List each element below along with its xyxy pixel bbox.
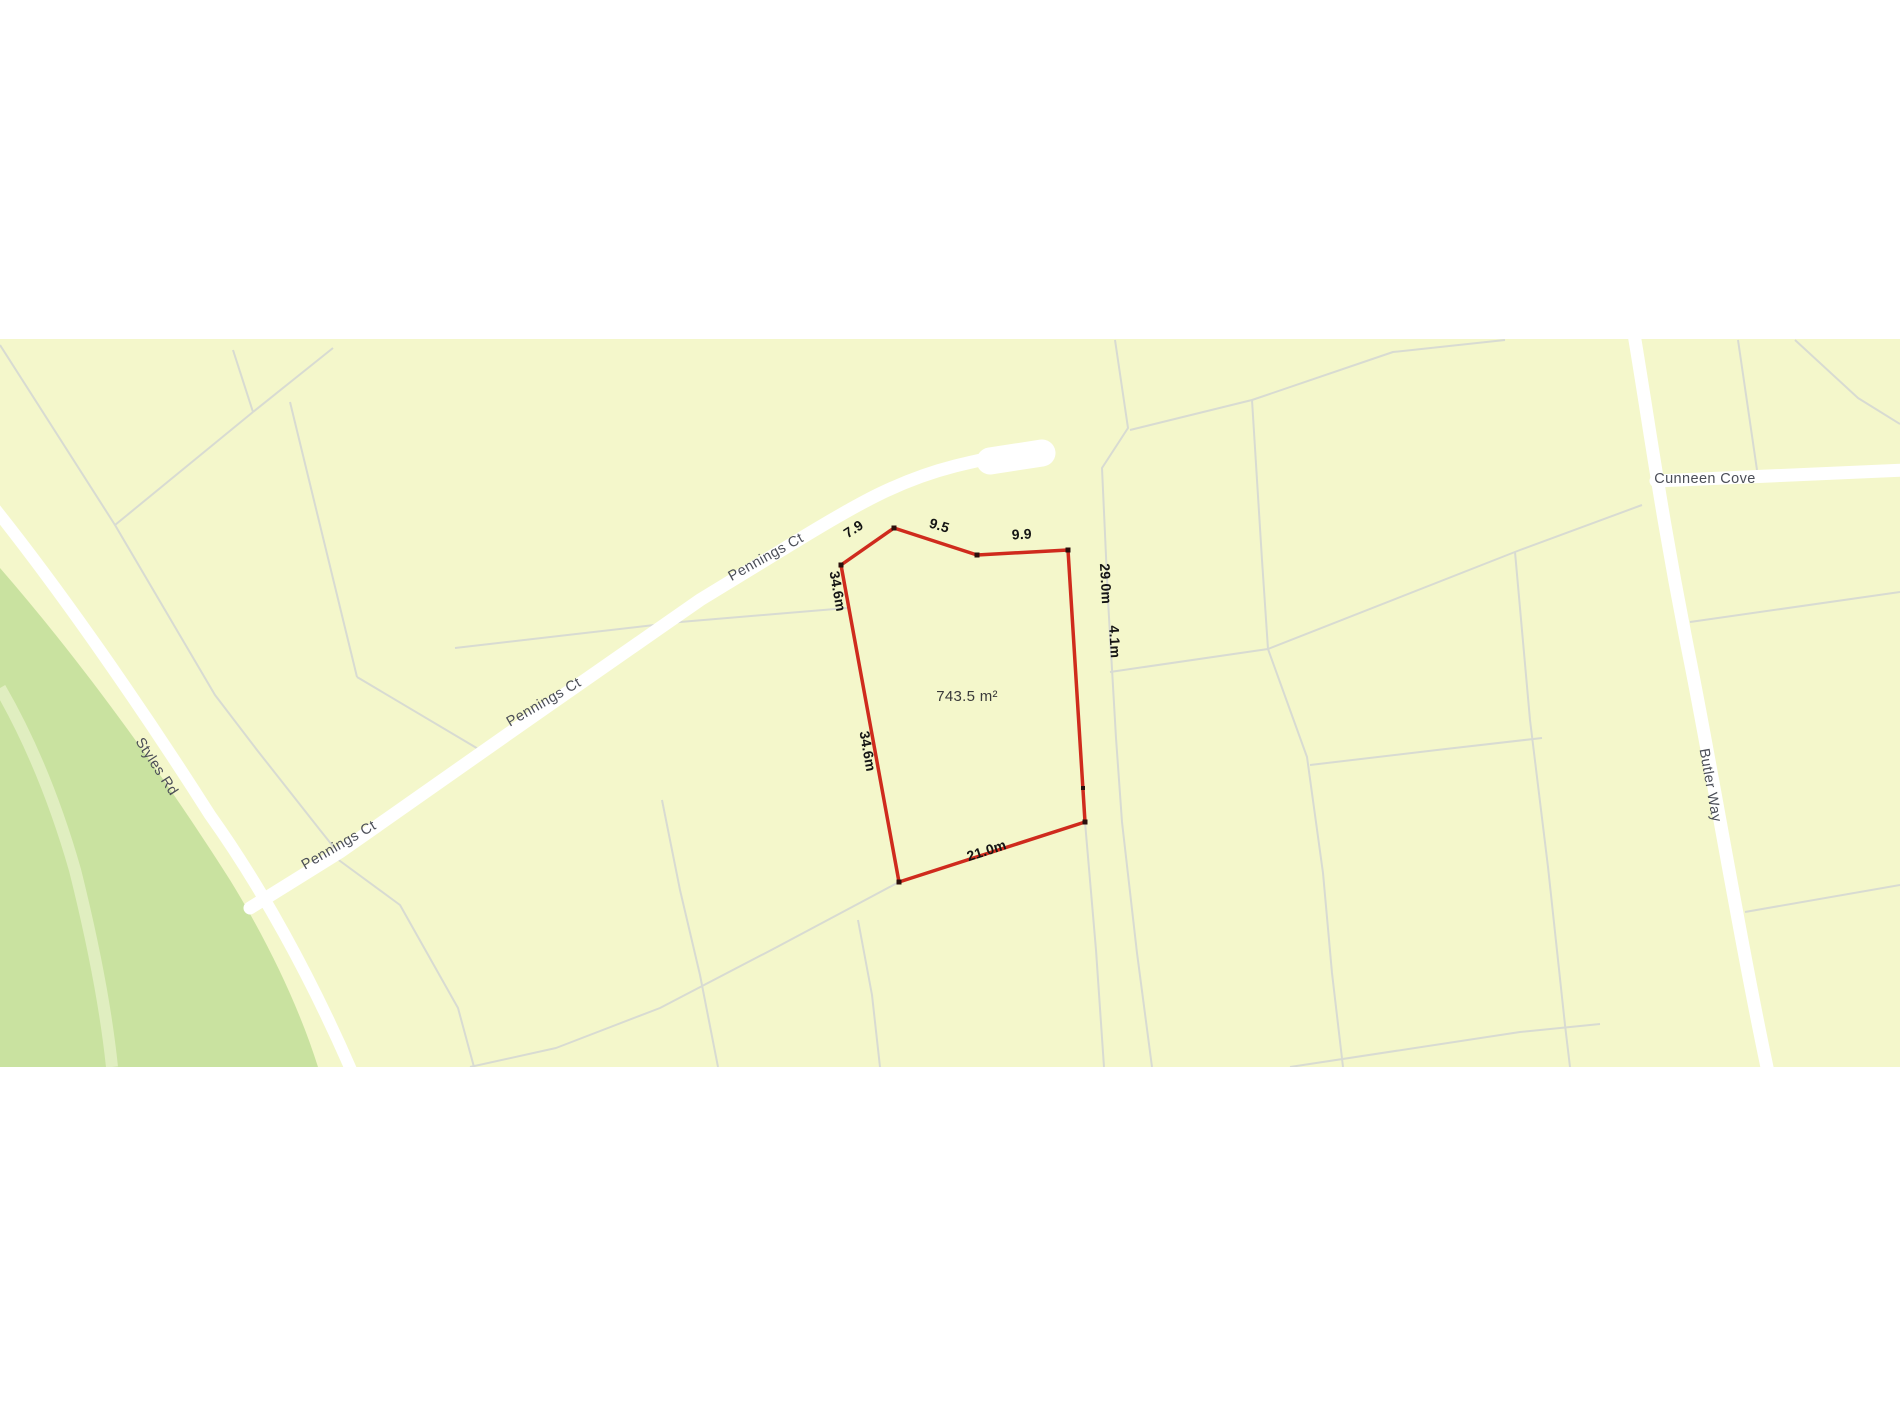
- lot-area-label: 743.5 m²: [936, 688, 998, 705]
- pennings-ct-culdesac: [990, 453, 1042, 461]
- dim-right-upper: 29.0m: [1097, 563, 1115, 604]
- dim-top-right: 9.9: [1011, 525, 1032, 542]
- dim-right-lower: 4.1m: [1106, 625, 1124, 659]
- map-screenshot: 7.9 9.5 9.9 34.6m 34.6m 29.0m 4.1m 21.0m…: [0, 0, 1900, 1425]
- map-canvas[interactable]: 7.9 9.5 9.9 34.6m 34.6m 29.0m 4.1m 21.0m…: [0, 0, 1900, 1425]
- road-label-cunneen: Cunneen Cove: [1654, 471, 1756, 487]
